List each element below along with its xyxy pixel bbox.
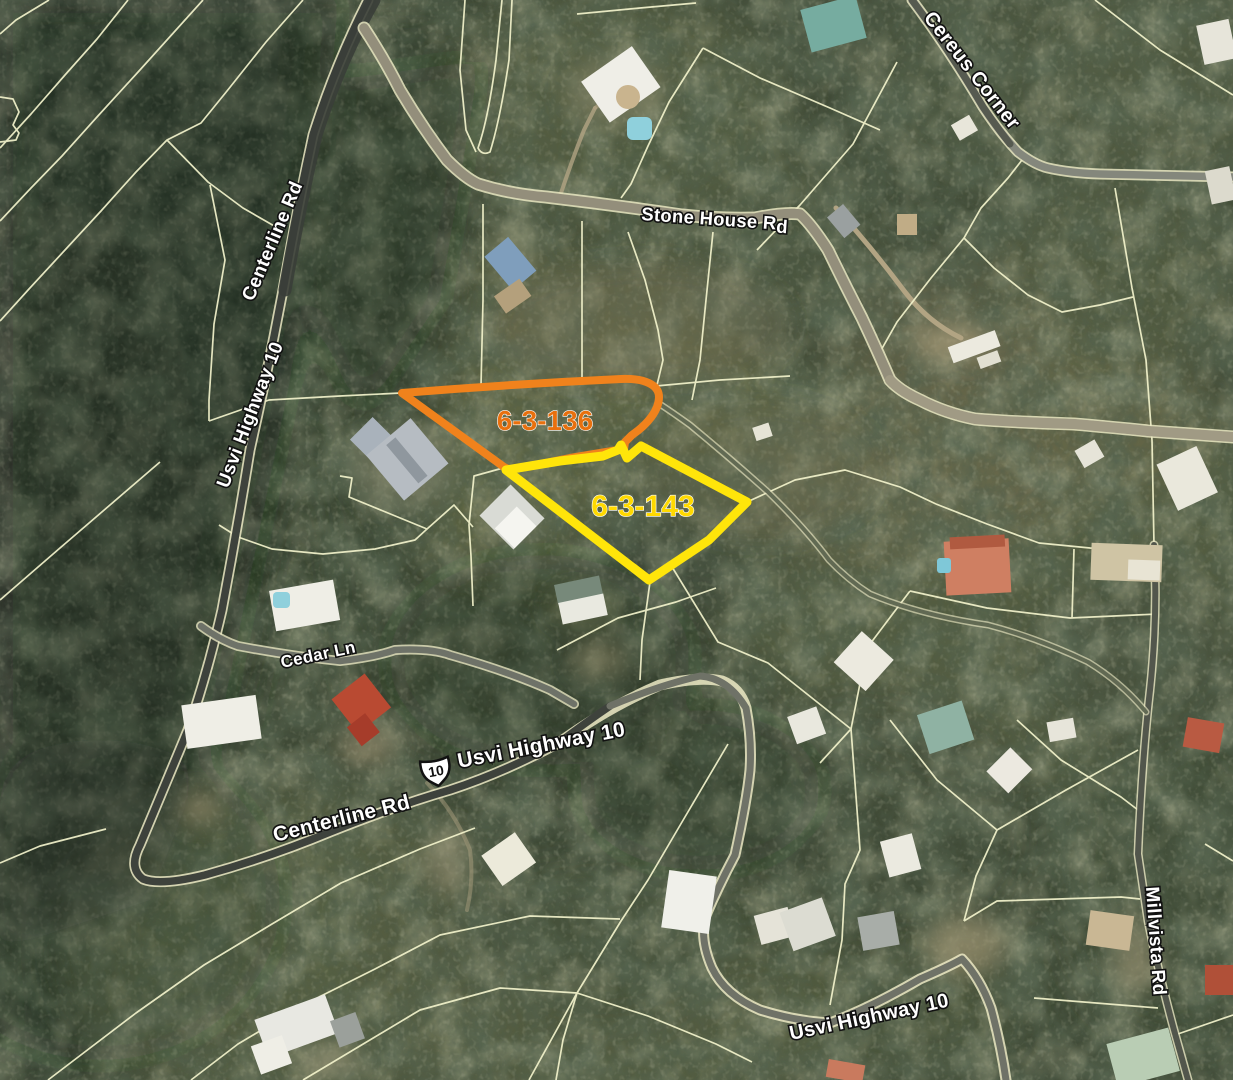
svg-text:6-3-143: 6-3-143 xyxy=(591,490,694,523)
svg-text:10: 10 xyxy=(427,762,445,780)
svg-text:6-3-136: 6-3-136 xyxy=(497,405,594,436)
